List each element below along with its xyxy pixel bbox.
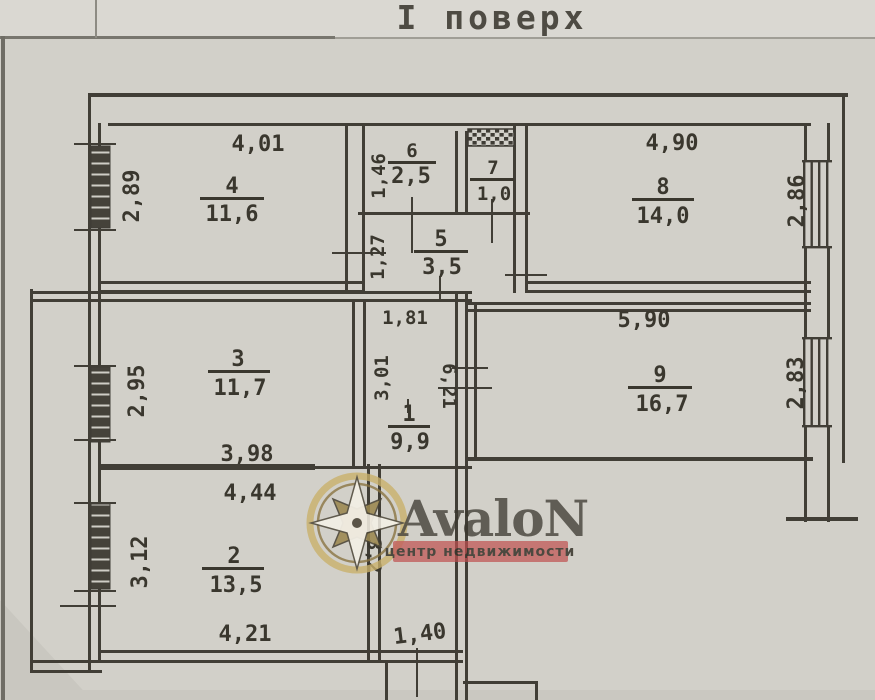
room-5-area: 3,5 [422,255,462,280]
dim-room4-width: 4,01 [232,132,285,157]
dim-room5-depth: 1,27 [367,234,389,280]
scanned-floorplan-document: І поверх [0,0,875,700]
room-2-area: 13,5 [210,573,263,598]
dim-room3-depth: 2,95 [125,365,150,418]
room-2-fraction-bar [202,567,264,570]
dim-room9-depth: 2,83 [784,357,809,410]
room-8-number: 8 [656,175,669,200]
dim-room4-depth: 2,89 [120,170,145,223]
room-3-area: 11,7 [214,376,267,401]
room-1-area: 9,9 [390,430,430,455]
room-2-number: 2 [227,544,240,569]
watermark-brand: AvaloN [397,489,588,548]
dim-room8-depth: 2,86 [785,175,810,228]
dim-hall-width: 1,81 [382,307,428,329]
room-9-number: 9 [653,363,666,388]
room-1-fraction-bar [388,425,430,428]
room-9-area: 16,7 [636,392,689,417]
room-7-area: 1,0 [477,183,511,205]
room-7-number: 7 [487,157,498,179]
dim-room3-width: 3,98 [221,442,274,467]
vent-shaft-hatch [468,129,514,146]
room-9-fraction-bar [628,386,692,389]
room-7-fraction-bar [470,178,514,181]
room-8-area: 14,0 [637,204,690,229]
paper-background [0,0,875,700]
dim-room6-depth: 1,46 [368,153,390,199]
dim-room2-depth: 3,12 [128,536,153,589]
dim-room2-width-bottom: 4,21 [219,622,272,647]
room-5-number: 5 [434,227,447,252]
room-4-number: 4 [225,174,238,199]
watermark-tagline: центр недвижимости [385,544,576,560]
window-room4 [91,146,110,228]
room-3-fraction-bar [208,370,270,373]
room-3-number: 3 [231,347,244,372]
room-4-fraction-bar [200,197,264,200]
room-6-number: 6 [406,140,417,162]
room-4-area: 11,6 [206,202,259,227]
floor-title: І поверх [397,0,588,37]
dim-hall-depth: 3,01 [371,355,393,401]
room-5-fraction-bar [414,250,468,253]
dim-room2-width-top: 4,44 [224,481,277,506]
dim-hall-wall: 6,21 [438,363,460,409]
room-1-number: 1 [402,402,415,427]
dim-room8-width: 4,90 [646,131,699,156]
room-8-fraction-bar [632,198,694,201]
floorplan-drawing: І поверх [0,0,875,700]
room-6-area: 2,5 [391,164,431,189]
window-room2 [91,504,110,589]
window-room3 [91,367,110,442]
dim-room9-width: 5,90 [618,308,671,333]
